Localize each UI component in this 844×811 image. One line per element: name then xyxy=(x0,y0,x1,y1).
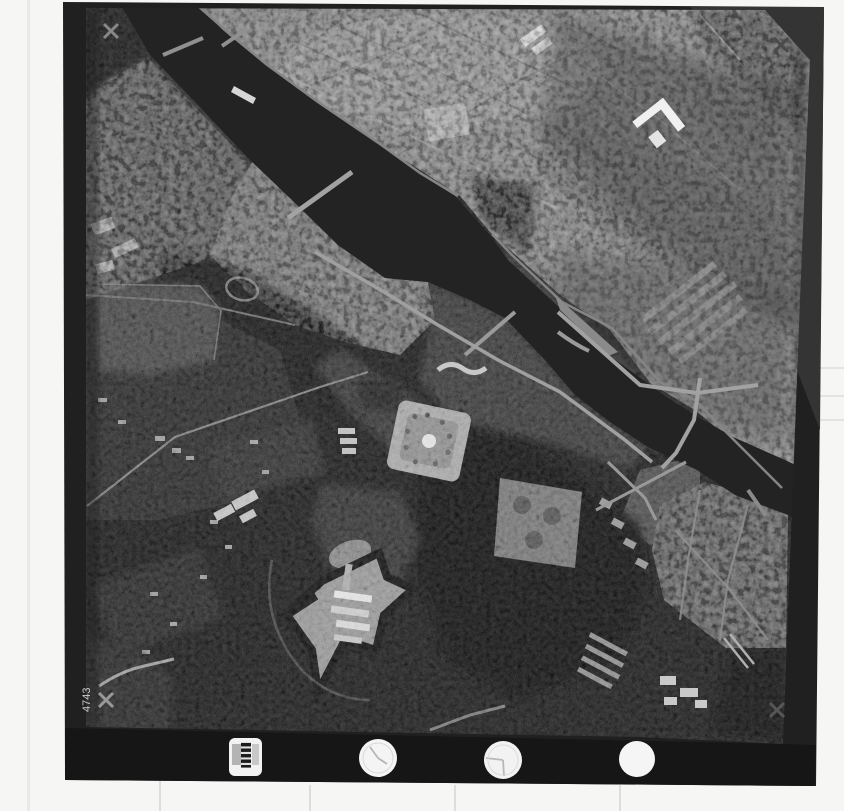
svg-text:4743: 4743 xyxy=(81,688,93,712)
